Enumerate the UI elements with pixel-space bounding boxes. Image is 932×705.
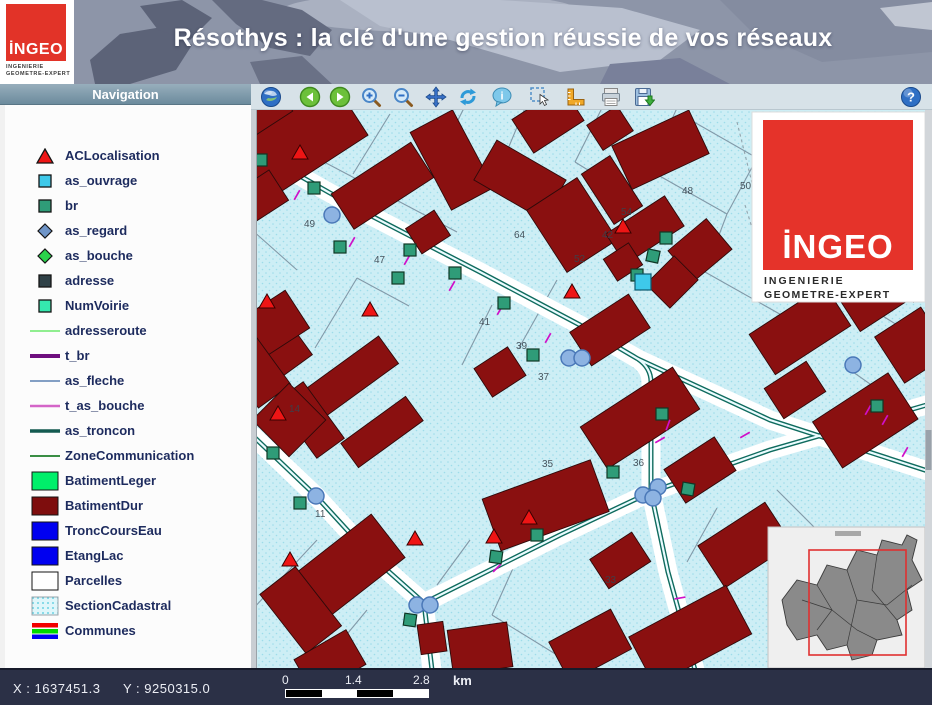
legend-label: br <box>65 198 78 213</box>
TroncCoursEau-symbol-icon <box>28 521 62 541</box>
back-icon[interactable] <box>299 86 321 108</box>
legend-label: NumVoirie <box>65 298 129 313</box>
parcel-number-14: 14 <box>289 404 301 415</box>
legend-label: t_as_bouche <box>65 398 144 413</box>
forward-icon[interactable] <box>329 86 351 108</box>
statusbar: X : 1637451.3 Y : 9250315.0 0 1.4 2.8 km <box>0 668 932 705</box>
parcel-number-50: 50 <box>740 181 752 192</box>
scale-end-label: 2.8 <box>413 673 430 687</box>
ingeo-subtitle-line2: GEOMETRE-EXPERT <box>6 71 72 78</box>
legend-item-t_as_bouche: t_as_bouche <box>5 393 251 418</box>
parcel-number-47: 47 <box>374 255 386 266</box>
br-symbol-icon <box>28 198 62 214</box>
info-icon[interactable]: i <box>491 86 513 108</box>
as_regard-symbol-icon <box>28 223 62 239</box>
select-icon[interactable] <box>529 86 551 108</box>
Communes-symbol-icon <box>28 621 62 641</box>
legend-label: TroncCoursEau <box>65 523 162 538</box>
navigation-panel-header: Navigation <box>0 84 251 105</box>
NumVoirie-symbol-icon <box>28 298 62 314</box>
adresse-symbol-icon <box>28 273 62 289</box>
legend-item-BatimentDur: BatimentDur <box>5 493 251 518</box>
scale-start-label: 0 <box>282 673 289 687</box>
svg-text:?: ? <box>907 90 915 105</box>
legend-item-as_fleche: as_fleche <box>5 368 251 393</box>
legend-label: BatimentDur <box>65 498 143 513</box>
legend-item-as_regard: as_regard <box>5 218 251 243</box>
x-coordinate: X : 1637451.3 <box>13 681 100 696</box>
BatimentDur-symbol-icon <box>28 496 62 516</box>
parcel-number-33: 33 <box>605 575 617 586</box>
as-ouvrage-symbol <box>635 274 651 290</box>
legend-item-adresseroute: adresseroute <box>5 318 251 343</box>
parcel-number-35: 35 <box>542 459 554 470</box>
as_fleche-symbol-icon <box>28 376 62 386</box>
scale-segment <box>357 690 393 697</box>
parcel-number-37: 37 <box>538 372 550 383</box>
scale-mid-label: 1.4 <box>345 673 362 687</box>
legend-item-as_bouche: as_bouche <box>5 243 251 268</box>
refresh-icon[interactable] <box>457 86 479 108</box>
legend-label: as_regard <box>65 223 127 238</box>
ingeo-wordmark: İNGEO <box>6 41 66 59</box>
parcel-number-42: 42 <box>602 230 614 241</box>
legend-item-BatimentLeger: BatimentLeger <box>5 468 251 493</box>
map-toolbar: i? <box>251 84 932 110</box>
legend-label: Parcelles <box>65 573 122 588</box>
legend-label: ACLocalisation <box>65 148 160 163</box>
ingeo-logo-mark: İNGEO <box>6 4 66 61</box>
ingeo-logo: İNGEO INGENIERIE GEOMETRE-EXPERT <box>0 0 74 84</box>
legend-item-SectionCadastral: SectionCadastral <box>5 593 251 618</box>
parcel-number-49: 49 <box>304 219 316 230</box>
scale-unit-label: km <box>453 673 472 688</box>
ingeo-logo-subtitle: INGENIERIE GEOMETRE-EXPERT <box>6 64 72 78</box>
legend-label: as_ouvrage <box>65 173 137 188</box>
map-logo-line2: GEOMETRE-EXPERT <box>764 289 891 301</box>
parcel-number-39: 39 <box>516 341 528 352</box>
app-title: Résothys : la clé d'une gestion réussie … <box>74 24 932 53</box>
legend-item-adresse: adresse <box>5 268 251 293</box>
t_as_bouche-symbol-icon <box>28 401 62 411</box>
scale-segment <box>322 690 358 697</box>
legend-item-ACLocalisation: ACLocalisation <box>5 143 251 168</box>
svg-text:i: i <box>500 91 503 103</box>
legend-item-Parcelles: Parcelles <box>5 568 251 593</box>
Parcelles-symbol-icon <box>28 571 62 591</box>
map-scrollbar-thumb[interactable] <box>926 430 932 470</box>
map-viewport[interactable]: 4947413937645254424850621411353633 İNGEO… <box>257 110 932 668</box>
save-icon[interactable] <box>633 86 655 108</box>
y-coordinate: Y : 9250315.0 <box>123 681 210 696</box>
legend-item-Communes: Communes <box>5 618 251 643</box>
legend-label: as_troncon <box>65 423 135 438</box>
legend-item-ZoneCommunication: ZoneCommunication <box>5 443 251 468</box>
resothys-app: Résothys : la clé d'une gestion réussie … <box>0 0 932 705</box>
legend-item-EtangLac: EtangLac <box>5 543 251 568</box>
EtangLac-symbol-icon <box>28 546 62 566</box>
t_br-symbol-icon <box>28 351 62 361</box>
BatimentLeger-symbol-icon <box>28 471 62 491</box>
scale-bar <box>285 689 429 698</box>
legend-label: adresse <box>65 273 114 288</box>
legend-label: Communes <box>65 623 136 638</box>
overview-map[interactable] <box>768 527 925 668</box>
legend-label: as_bouche <box>65 248 133 263</box>
SectionCadastral-symbol-icon <box>28 596 62 616</box>
scale-segment <box>286 690 322 697</box>
legend-item-br: br <box>5 193 251 218</box>
as_troncon-symbol-icon <box>28 426 62 436</box>
as_bouche-symbol-icon <box>28 248 62 264</box>
legend-item-as_ouvrage: as_ouvrage <box>5 168 251 193</box>
ingeo-map-logo: İNGEO INGENIERIE GEOMETRE-EXPERT <box>752 112 925 302</box>
ingeo-subtitle-line1: INGENIERIE <box>6 64 72 71</box>
legend-label: adresseroute <box>65 323 147 338</box>
pan-icon[interactable] <box>425 86 447 108</box>
parcel-number-52: 52 <box>574 254 586 265</box>
overview-handle[interactable] <box>835 531 861 536</box>
globe-icon[interactable] <box>260 86 282 108</box>
legend-label: BatimentLeger <box>65 473 156 488</box>
parcel-number-64: 64 <box>514 230 526 241</box>
measure-icon[interactable] <box>565 86 587 108</box>
parcel-number-36: 36 <box>633 458 645 469</box>
legend-label: EtangLac <box>65 548 124 563</box>
legend-label: t_br <box>65 348 90 363</box>
legend-label: SectionCadastral <box>65 598 171 613</box>
parcel-number-48: 48 <box>682 186 694 197</box>
parcel-number-54: 54 <box>621 207 633 218</box>
parcel-number-11: 11 <box>315 509 326 520</box>
print-icon[interactable] <box>600 86 622 108</box>
legend-label: as_fleche <box>65 373 124 388</box>
map-logo-wordmark: İNGEO <box>782 228 893 265</box>
legend-item-as_troncon: as_troncon <box>5 418 251 443</box>
map-logo-line1: INGENIERIE <box>764 275 845 287</box>
parcel-number-41: 41 <box>479 317 491 328</box>
map-canvas[interactable]: 4947413937645254424850621411353633 İNGEO… <box>257 110 932 668</box>
as_ouvrage-symbol-icon <box>28 173 62 189</box>
header-banner: Résothys : la clé d'une gestion réussie … <box>0 0 932 84</box>
ZoneCommunication-symbol-icon <box>28 451 62 461</box>
zoom-out-icon[interactable] <box>392 86 414 108</box>
adresseroute-symbol-icon <box>28 326 62 336</box>
legend-label: ZoneCommunication <box>65 448 194 463</box>
map-scrollbar[interactable] <box>925 110 932 668</box>
legend-item-TroncCoursEau: TroncCoursEau <box>5 518 251 543</box>
ACLocalisation-symbol-icon <box>28 148 62 164</box>
zoom-in-icon[interactable] <box>360 86 382 108</box>
help-icon[interactable]: ? <box>900 86 922 108</box>
scale-segment <box>393 690 429 697</box>
legend-item-t_br: t_br <box>5 343 251 368</box>
legend-sidebar: ACLocalisationas_ouvragebras_regardas_bo… <box>0 105 251 668</box>
legend-item-NumVoirie: NumVoirie <box>5 293 251 318</box>
